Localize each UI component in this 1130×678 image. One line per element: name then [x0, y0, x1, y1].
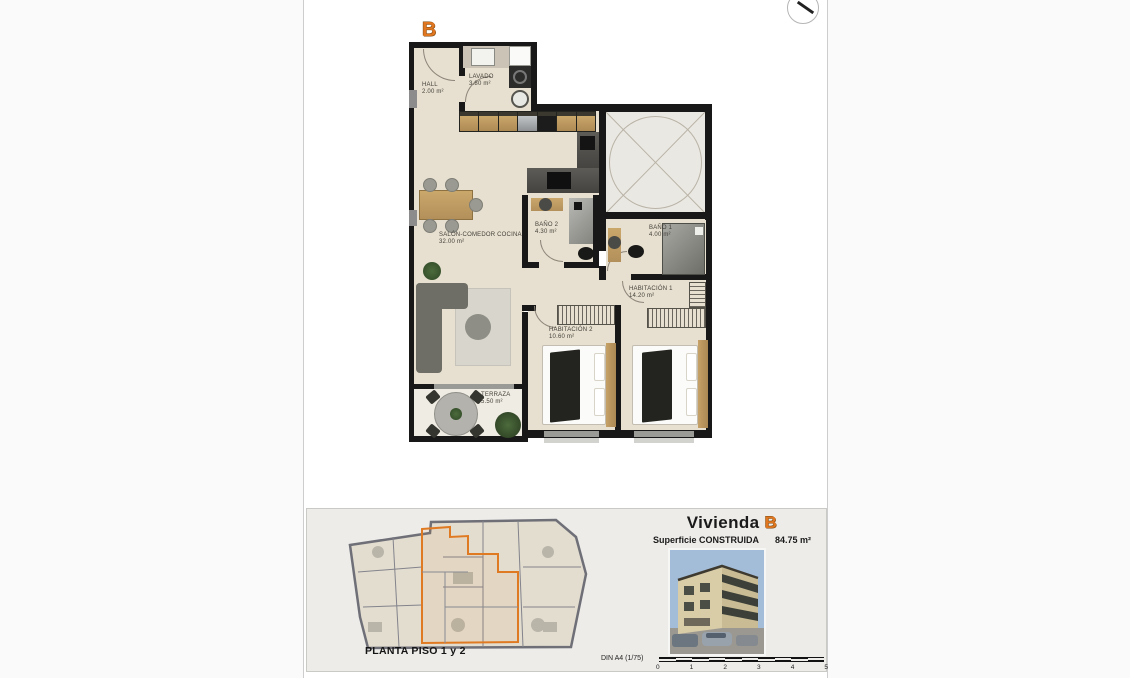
scale-segment — [808, 657, 825, 662]
wall — [522, 312, 528, 390]
chair — [445, 178, 459, 192]
terrace-window — [434, 384, 514, 389]
wall — [599, 104, 712, 112]
closet-hab1 — [647, 308, 706, 328]
bedroom1-window — [634, 431, 694, 437]
room-label-terraza: TERRAZA5.50 m² — [481, 392, 510, 406]
plant — [450, 408, 462, 420]
wall — [705, 104, 712, 220]
scale-segment — [692, 657, 709, 662]
scale-tick: 4 — [791, 664, 795, 671]
bed-throw — [550, 349, 580, 422]
wall — [599, 266, 606, 280]
document-page: B — [303, 0, 828, 678]
footer-panel: PLANTA PISO 1 y 2 Vivienda B Superficie … — [306, 508, 827, 672]
cabinet — [479, 112, 497, 131]
window-sill — [544, 438, 599, 443]
cooktop — [547, 172, 571, 189]
unit-letter-marker: B — [422, 20, 436, 40]
shower-head-icon — [574, 202, 582, 210]
dryer — [511, 90, 529, 108]
ottoman — [465, 314, 491, 340]
room-label-bano2: BAÑO 24.30 m² — [535, 222, 558, 236]
surface-label: Superficie CONSTRUIDA — [653, 535, 759, 545]
scale-bar — [659, 657, 824, 662]
fridge — [509, 46, 531, 66]
unit-title-letter: B — [765, 513, 778, 532]
kitchen-sink — [580, 136, 595, 150]
headboard — [606, 343, 616, 427]
cabinet — [460, 112, 478, 131]
scale-tick: 2 — [723, 664, 727, 671]
site-plan-caption: PLANTA PISO 1 y 2 — [365, 645, 466, 657]
unit-title-prefix: Vivienda — [687, 513, 760, 532]
wall — [564, 262, 599, 268]
wall — [409, 388, 414, 442]
scale-segment — [791, 657, 808, 662]
floor-plan: HALL2.00 m² LAVADO3.80 m² SALÓN-COMEDOR … — [409, 40, 721, 450]
cabinet — [557, 112, 575, 131]
oven — [538, 112, 556, 131]
laundry-sink — [471, 48, 495, 66]
unit-title: Vivienda B — [637, 513, 827, 533]
scale-tick: 1 — [690, 664, 694, 671]
chair — [423, 178, 437, 192]
site-plan — [333, 517, 603, 652]
closet-hab2 — [557, 305, 615, 325]
plant — [495, 412, 521, 438]
room-label-hall: HALL2.00 m² — [422, 82, 444, 96]
bedroom2-window — [544, 431, 599, 437]
room-label-lavado: LAVADO3.80 m² — [469, 74, 494, 88]
kitchen-cabinets — [459, 111, 596, 132]
scale-segment — [775, 657, 792, 662]
bano2-basin — [539, 198, 552, 211]
pillow — [686, 388, 697, 416]
window-sill — [634, 438, 694, 443]
scale-segment — [725, 657, 742, 662]
dishwasher — [518, 112, 536, 131]
plant — [423, 262, 441, 280]
utility-box — [409, 210, 417, 226]
building-photo — [668, 548, 766, 656]
bed-throw — [642, 349, 672, 422]
scale-tick: 3 — [757, 664, 761, 671]
bano1-basin — [608, 236, 621, 249]
scale-segment — [709, 657, 726, 662]
scale-label: DIN A4 (1/75) — [601, 655, 643, 662]
bano1-toilet — [628, 245, 644, 258]
pillow — [686, 353, 697, 381]
scale-segment — [742, 657, 759, 662]
scale-segment — [758, 657, 775, 662]
wall — [531, 104, 601, 111]
washer-door-icon — [513, 70, 527, 84]
scale-tick: 0 — [656, 664, 660, 671]
pillow — [594, 353, 605, 381]
wall — [606, 212, 705, 219]
screenshot-stage: B — [0, 0, 1130, 678]
pillow — [594, 388, 605, 416]
room-label-hab1: HABITACIÓN 114.20 m² — [629, 286, 673, 300]
cabinet — [499, 112, 517, 131]
surface-value: 84.75 m² — [775, 535, 811, 545]
chair — [423, 219, 437, 233]
chair — [445, 219, 459, 233]
scale-segment — [676, 657, 693, 662]
dining-table — [419, 190, 473, 220]
headboard — [698, 340, 708, 428]
wall — [599, 104, 606, 220]
wall — [522, 262, 539, 268]
wall — [599, 219, 606, 251]
shaft-cross-icon — [606, 112, 705, 213]
cabinet — [577, 112, 595, 131]
wall — [531, 42, 537, 106]
room-label-salon: SALÓN-COMEDOR COCINA32.00 m² — [439, 232, 522, 246]
room-label-hab2: HABITACIÓN 210.60 m² — [549, 327, 593, 341]
closet-hab1-side — [689, 282, 706, 308]
room-label-bano1: BAÑO 14.00 m² — [649, 225, 672, 239]
sofa — [416, 283, 442, 373]
surface-line: Superficie CONSTRUIDA 84.75 m² — [625, 535, 839, 545]
chair — [469, 198, 483, 212]
scale-tick: 5 — [824, 664, 828, 671]
scale-segment — [659, 657, 676, 662]
bano2-toilet — [578, 247, 594, 260]
scale-ticks: 0 1 2 3 4 5 — [656, 664, 828, 671]
shower-head-icon — [695, 227, 703, 235]
utility-box — [409, 90, 417, 108]
wall — [522, 195, 528, 268]
